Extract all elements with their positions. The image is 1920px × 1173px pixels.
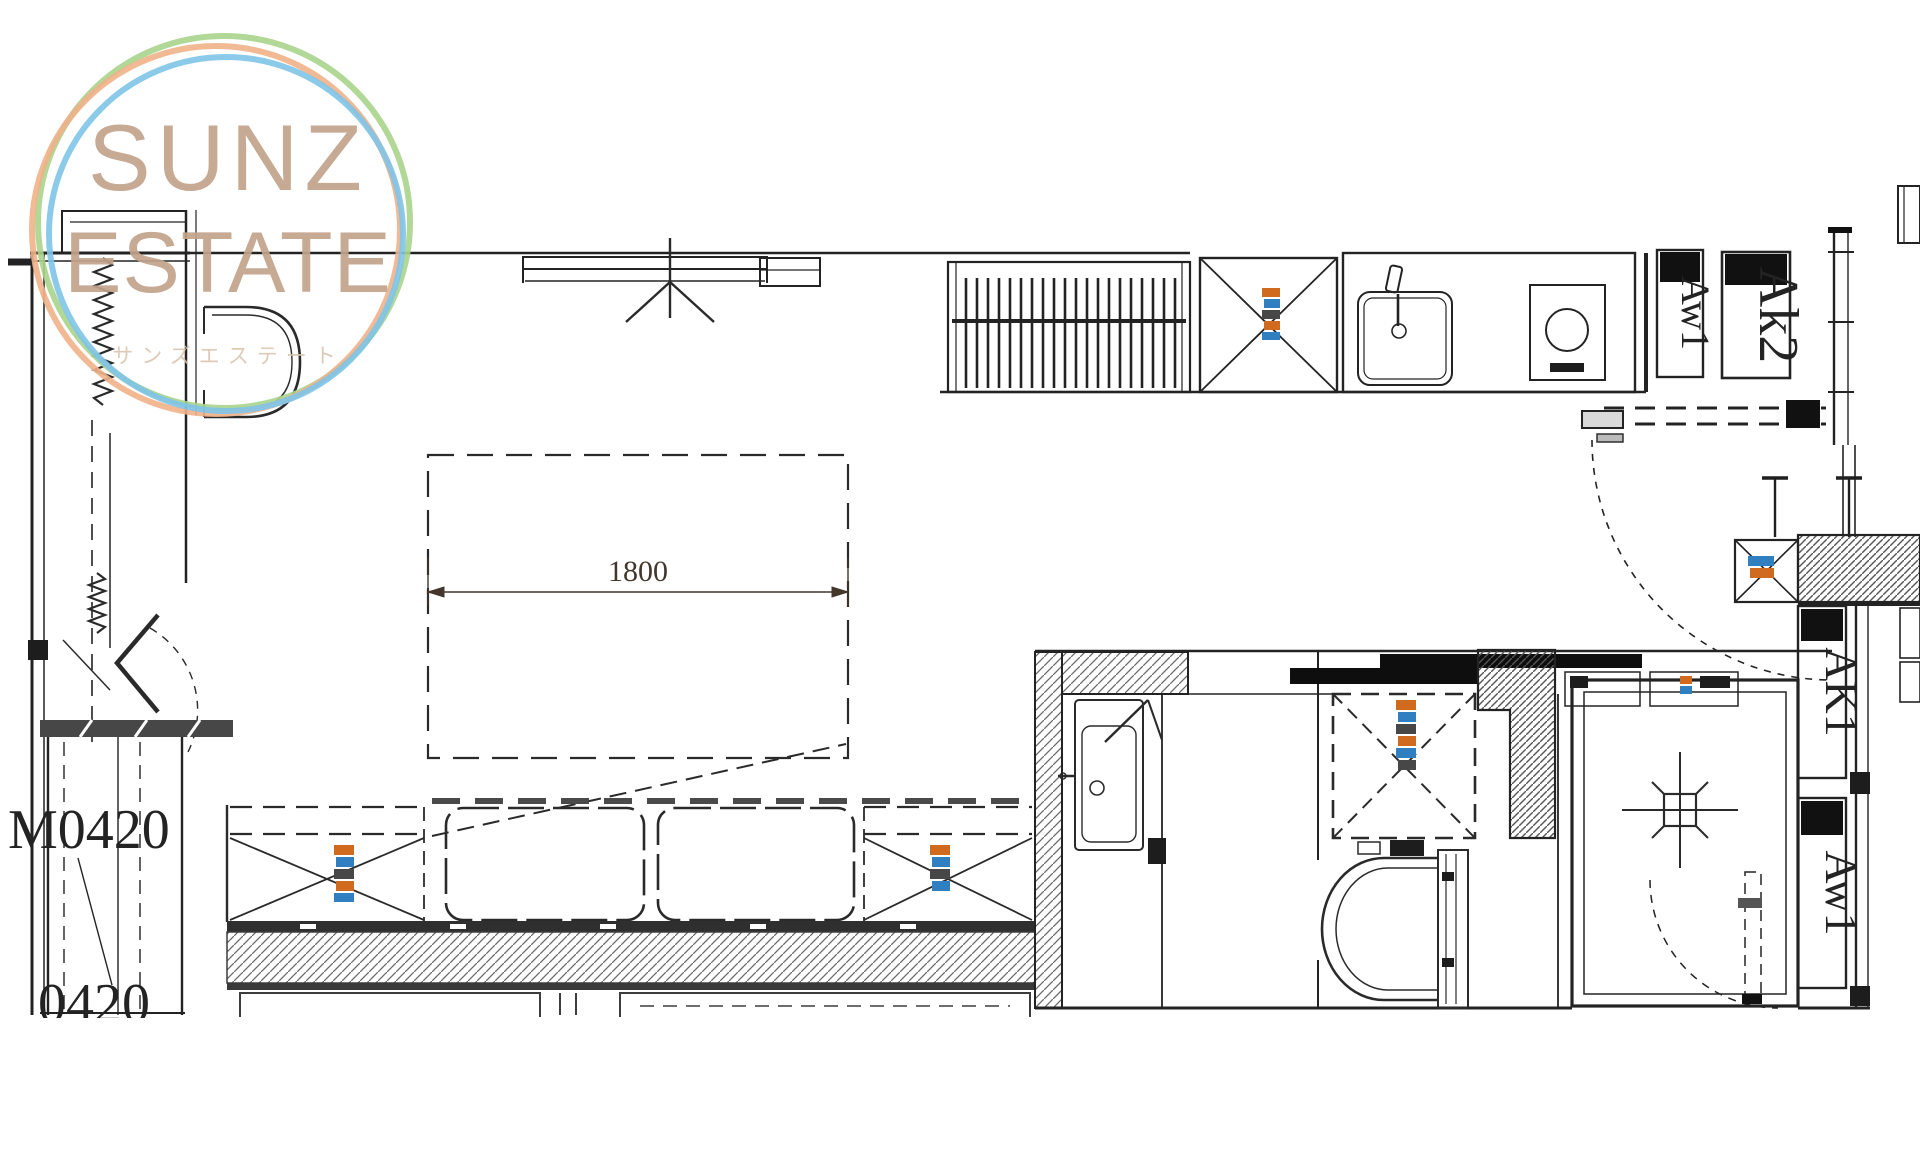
mini-annotation-entrance [1680,676,1692,694]
mini-annotation-washer [1396,700,1416,770]
label-m0420: M0420 [8,799,170,861]
toilet [1322,840,1468,1008]
floorplan-drawing: 1800 [0,0,1920,1173]
kitchen-louver-grille [948,262,1190,392]
outer-walls [8,210,1190,1015]
kitchen-wall-notch [760,258,820,286]
mini-annotation-sofa-right [930,845,950,891]
top-window [523,257,767,283]
door-frame-marks [1762,478,1862,537]
label-ak2-top: Ak2 [1747,267,1809,363]
mini-annotation-fridge [1262,288,1280,340]
window-symbol-icon [626,238,714,322]
floor-hatch-crosshair-icon [1622,752,1738,868]
washbasin-d-fixture [204,307,300,417]
hall-hatch-corner [1478,650,1555,838]
right-outer-wall-top [1828,186,1920,445]
entrance-room [1565,672,1798,1008]
left-lower-wall [40,720,233,737]
label-ak1-right: AK1 [1816,647,1867,736]
label-aw1-right: Aw1 [1816,850,1867,935]
crop-mask [0,1018,260,1058]
south-wall-hatch [227,921,1035,1017]
mini-annotation-sofa-left [334,845,354,902]
vanity-unit [1058,700,1166,864]
bed-area [428,455,848,836]
floorplan-canvas: 1800 [0,0,1920,1173]
washroom-walls [1035,651,1832,1008]
bed-dimension-label: 1800 [608,555,668,588]
label-aw1-top: Aw1 [1673,276,1718,350]
